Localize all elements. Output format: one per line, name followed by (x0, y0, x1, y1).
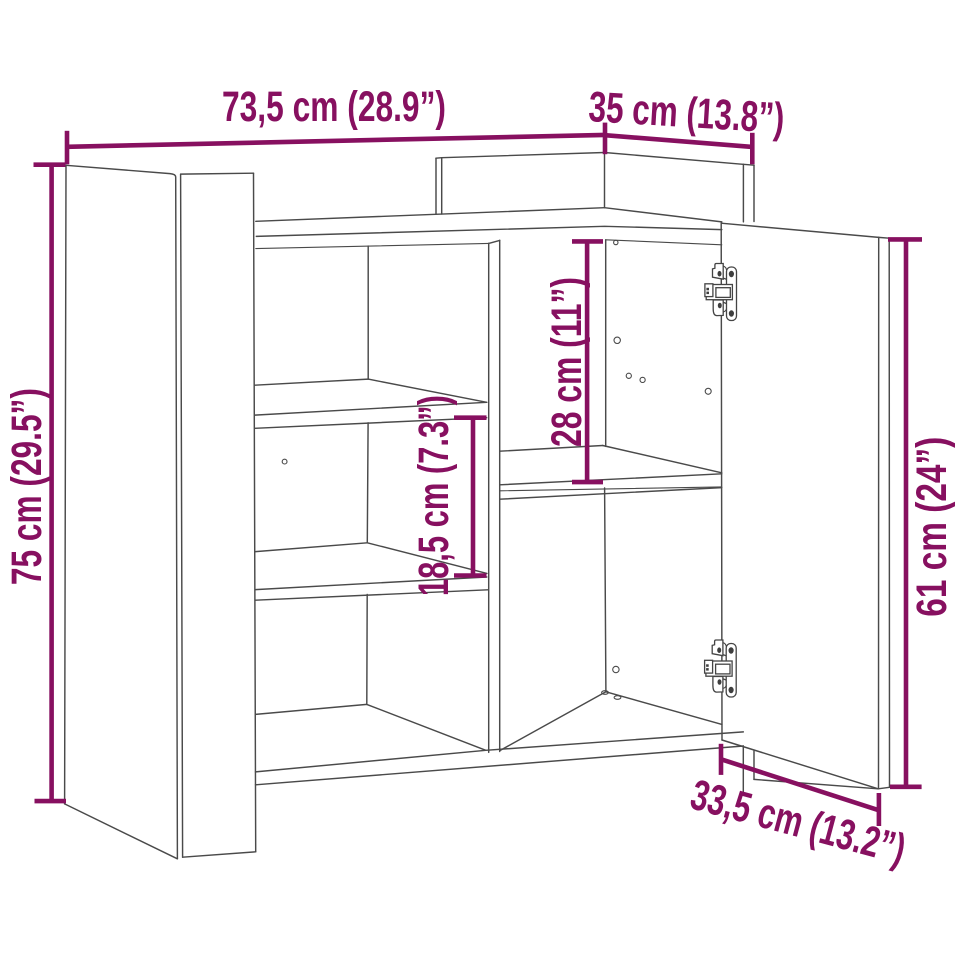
svg-text:73,5 cm (28.9”): 73,5 cm (28.9”) (222, 83, 446, 131)
svg-text:75 cm (29.5”): 75 cm (29.5”) (3, 388, 51, 585)
svg-text:61 cm (24”): 61 cm (24”) (908, 437, 955, 617)
svg-text:28 cm (11”): 28 cm (11”) (543, 277, 591, 447)
svg-text:18,5 cm (7.3”): 18,5 cm (7.3”) (410, 395, 458, 596)
